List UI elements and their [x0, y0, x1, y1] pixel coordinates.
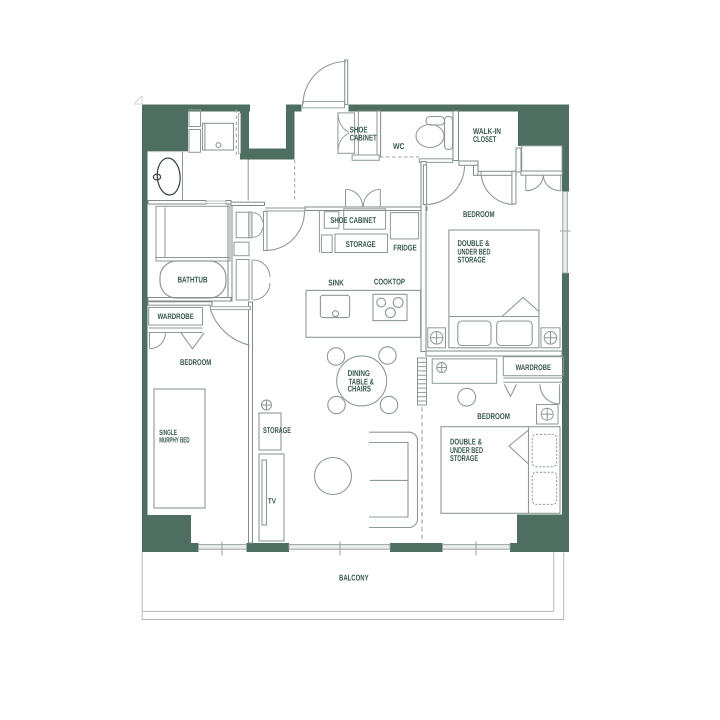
svg-text:CLOSET: CLOSET: [473, 134, 497, 144]
svg-text:SINK: SINK: [328, 278, 344, 288]
svg-text:TV: TV: [268, 497, 277, 506]
svg-text:STORAGE: STORAGE: [346, 239, 376, 249]
svg-text:BEDROOM: BEDROOM: [477, 411, 510, 421]
svg-text:WC: WC: [393, 141, 405, 151]
svg-text:COOKTOP: COOKTOP: [374, 277, 405, 287]
svg-text:CHAIRS: CHAIRS: [348, 384, 372, 394]
svg-text:BALCONY: BALCONY: [339, 572, 369, 582]
svg-text:BEDROOM: BEDROOM: [180, 357, 211, 367]
svg-text:STORAGE: STORAGE: [263, 425, 291, 435]
svg-text:WARDROBE: WARDROBE: [516, 363, 552, 372]
svg-text:MURPHY BED: MURPHY BED: [159, 435, 190, 444]
svg-text:STORAGE: STORAGE: [450, 453, 478, 463]
svg-text:STORAGE: STORAGE: [458, 254, 486, 264]
svg-text:CABINET: CABINET: [350, 133, 378, 143]
svg-text:WARDROBE: WARDROBE: [158, 312, 195, 321]
svg-text:SHOE CABINET: SHOE CABINET: [330, 215, 376, 225]
svg-text:BATHTUB: BATHTUB: [178, 275, 208, 285]
svg-text:FRIDGE: FRIDGE: [393, 243, 417, 253]
svg-text:BEDROOM: BEDROOM: [463, 209, 495, 219]
